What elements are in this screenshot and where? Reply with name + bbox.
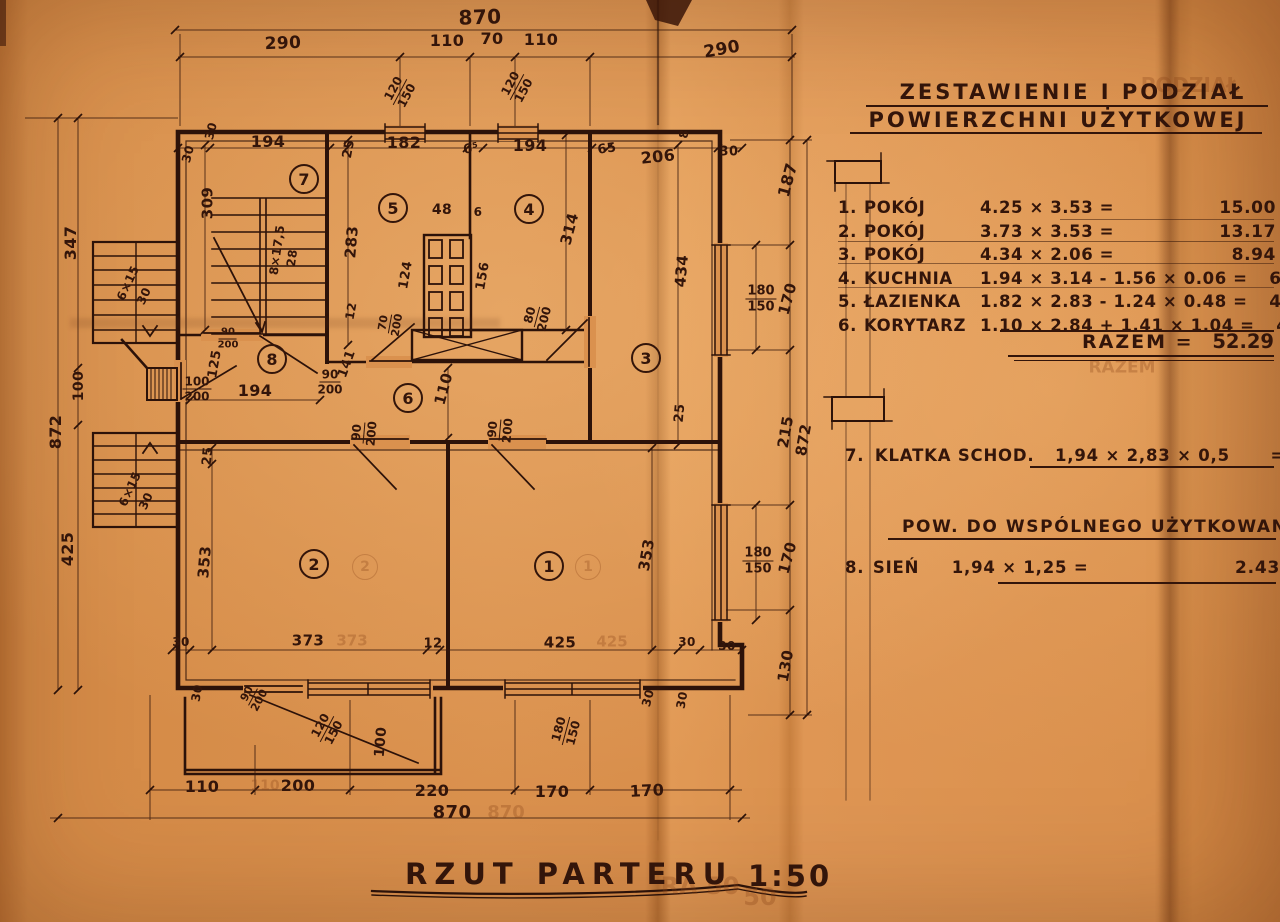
row-value: 4.59 — [1248, 292, 1280, 312]
eraser-smudge — [70, 318, 500, 328]
dim-label: 194 — [513, 138, 548, 154]
room-number: 8 — [257, 344, 287, 374]
row-name: KORYTARZ — [864, 316, 980, 336]
row-value: 15.00 — [1210, 198, 1276, 218]
bathtub-symbol — [412, 330, 522, 360]
dim-label: 110 — [524, 32, 559, 48]
dim-label: 30 — [718, 640, 736, 652]
row-num: 6. — [838, 316, 864, 336]
scanned-floor-plan-sheet: 8702901107011029012015012015030301942518… — [0, 0, 1280, 922]
room-number: 2 — [299, 549, 329, 579]
table-title-line2: POWIERZCHNI UŻYTKOWEJ — [858, 108, 1258, 132]
dim-label: 28 — [285, 249, 299, 268]
row-formula: 3.73 × 3.53 = — [980, 222, 1210, 242]
row-formula: 1.82 × 2.83 - 1.24 × 0.48 = — [980, 292, 1248, 312]
dimension-ticks — [54, 26, 811, 822]
dim-label: 70 — [480, 31, 503, 47]
total-rule-bottom — [1008, 355, 1274, 357]
title-underline — [850, 132, 1262, 134]
dim-label: 25 — [673, 403, 688, 423]
pillar-symbol — [824, 153, 892, 429]
dim-label: 194 — [238, 383, 273, 399]
dim-label: 30 — [720, 146, 739, 159]
dim-label: 309 — [201, 187, 216, 220]
row-name: POKÓJ — [864, 222, 980, 242]
dim-label: 200 — [281, 778, 316, 794]
row-formula: 1.94 × 3.14 - 1.56 × 0.06 = — [980, 269, 1248, 289]
room-number: 1 — [534, 551, 564, 581]
dim-label: 110 — [185, 779, 220, 795]
row-rule — [838, 241, 1274, 242]
row-equals: = — [1270, 446, 1280, 465]
row-num: 7. — [845, 446, 864, 465]
window-size-label: 90200 — [485, 416, 514, 443]
row7-underline — [1030, 466, 1274, 468]
dim-label: 870 — [458, 6, 502, 27]
dim-label: 30 — [172, 636, 190, 648]
area-row: 1.POKÓJ4.25 × 3.53 =15.00 — [838, 198, 1276, 218]
dim-label: 30 — [190, 683, 205, 702]
dim-label: 12 — [424, 638, 443, 651]
window-size-label: 90200 — [349, 419, 378, 446]
ghost-print: 425 — [596, 635, 627, 650]
dim-label: 170 — [629, 782, 664, 800]
row-num: 4. — [838, 269, 864, 289]
row-value: 6.00 — [1248, 269, 1280, 289]
dim-label: 48 — [432, 203, 452, 217]
window-size-label: 180150 — [745, 285, 776, 314]
dim-label: 290 — [264, 35, 301, 53]
ghost-print: RAZEM — [1088, 360, 1155, 377]
row-formula: 1,94 × 2,83 × 0,5 — [1055, 446, 1230, 465]
row-value: 2.43 — [1235, 558, 1280, 578]
fold-tear-mark — [646, 0, 692, 26]
dim-label: 373 — [292, 634, 325, 649]
ghost-print: 2 — [352, 554, 378, 580]
dim-label: 30 — [675, 690, 690, 709]
area-row: 5.ŁAZIENKA1.82 × 2.83 - 1.24 × 0.48 =4.5… — [838, 292, 1276, 312]
dim-label: 30 — [678, 636, 696, 648]
row-name: KUCHNIA — [864, 269, 980, 289]
dim-label: 100 — [373, 726, 390, 758]
ghost-print: 373 — [336, 634, 367, 649]
entry-hatch — [147, 368, 177, 400]
row-num: 1. — [838, 198, 864, 218]
room-number: 5 — [378, 193, 408, 223]
window-size-label: 180150 — [742, 547, 773, 576]
dim-label: 182 — [387, 135, 422, 151]
room-number: 6 — [393, 383, 423, 413]
window-size-label: 70200 — [376, 311, 405, 338]
row-num: 8. — [845, 558, 864, 577]
dim-label: 65 — [597, 141, 618, 157]
row-name: POKÓJ — [864, 198, 980, 218]
edge-mark — [0, 0, 6, 46]
ghost-print: 870 — [487, 804, 525, 822]
room-number: 7 — [289, 164, 319, 194]
dim-label: 170 — [535, 784, 570, 800]
row-formula: 1,94 × 1,25 = — [952, 558, 1089, 577]
dim-label: 872 — [48, 415, 64, 450]
row-num: 5. — [838, 292, 864, 312]
dim-label: 194 — [251, 134, 286, 150]
row8-underline — [998, 582, 1276, 584]
row-rule — [838, 263, 1274, 264]
dim-label: 283 — [343, 225, 361, 259]
row-value: 13.17 — [1210, 222, 1276, 242]
dim-label: 206 — [640, 147, 676, 167]
drawing-scale: 1:50 — [748, 859, 832, 893]
ghost-print: 1 — [575, 554, 601, 580]
total-value: 52.29 — [1200, 330, 1274, 353]
total-label: RAZEM = — [1082, 331, 1194, 353]
dim-label: 8 — [677, 129, 690, 140]
dim-label: 12 — [344, 301, 359, 320]
dim-label: 6⁵ — [462, 141, 480, 157]
dim-label: 6 — [474, 206, 483, 218]
dim-label: 100 — [72, 371, 86, 401]
dim-label: 353 — [196, 545, 214, 579]
row-formula: 4.25 × 3.53 = — [980, 198, 1210, 218]
dim-label: 25 — [201, 446, 216, 466]
ghost-print: 110 — [250, 779, 279, 793]
row-num: 2. — [838, 222, 864, 242]
row-name: ŁAZIENKA — [864, 292, 980, 312]
section2-underline — [888, 538, 1276, 540]
dim-label: 425 — [60, 532, 76, 567]
area-row-8: 8. SIEŃ 1,94 × 1,25 = 2.43 — [845, 558, 1280, 578]
dim-label: 220 — [415, 783, 450, 799]
room-number: 3 — [631, 343, 661, 373]
dim-label: 25 — [341, 139, 357, 160]
row-rule — [1060, 219, 1274, 220]
area-row-7: 7. KLATKA SCHOD. 1,94 × 2,83 × 0,5 = 2.7… — [845, 446, 1280, 466]
dim-label: 110 — [430, 33, 465, 49]
total-rule-bottom2 — [1014, 360, 1274, 361]
room-number: 4 — [514, 194, 544, 224]
row-name: SIEŃ — [873, 558, 919, 577]
dim-label: 425 — [544, 636, 577, 651]
window-size-label: 90200 — [218, 328, 239, 351]
table-title-line1: ZESTAWIENIE I PODZIAŁ — [880, 80, 1266, 104]
area-row: 4.KUCHNIA1.94 × 3.14 - 1.56 × 0.06 =6.00 — [838, 269, 1276, 289]
row-name: KLATKA SCHOD. — [875, 446, 1035, 465]
dim-label: 870 — [433, 804, 472, 822]
row-rule — [838, 287, 1274, 288]
drawing-title: RZUT PARTERU — [405, 857, 733, 891]
area-row: 2.POKÓJ3.73 × 3.53 =13.17 — [838, 222, 1276, 242]
window-size-label: 100200 — [182, 376, 211, 403]
dim-label: 347 — [63, 226, 79, 261]
dim-label: 434 — [673, 254, 691, 288]
section2-title: POW. DO WSPÓLNEGO UŻYTKOWANIA — [902, 517, 1280, 537]
